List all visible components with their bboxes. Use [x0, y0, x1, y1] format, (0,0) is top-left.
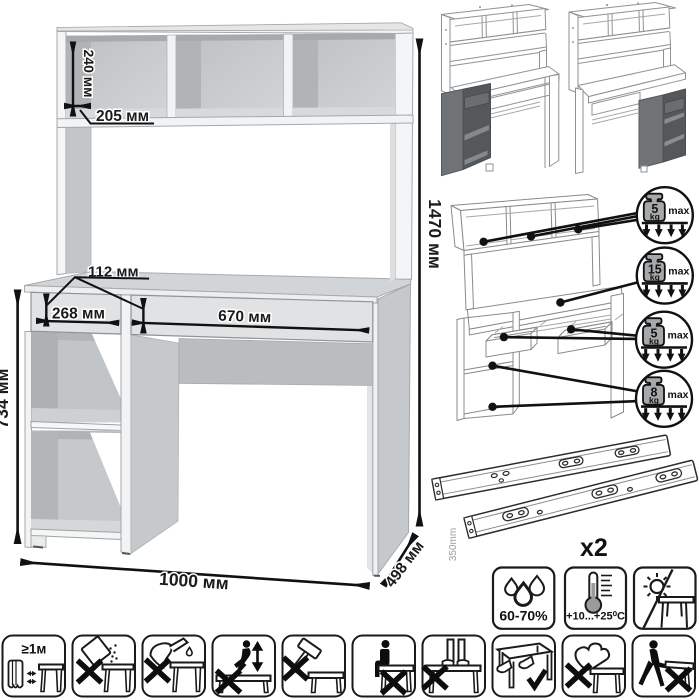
- svg-text:max: max: [668, 205, 689, 217]
- svg-text:205 мм: 205 мм: [96, 108, 149, 125]
- svg-text:1000 мм: 1000 мм: [158, 569, 229, 594]
- svg-text:240 мм: 240 мм: [81, 50, 97, 98]
- svg-text:kg: kg: [650, 272, 660, 282]
- svg-text:670 мм: 670 мм: [218, 308, 272, 327]
- svg-text:268 мм: 268 мм: [52, 306, 105, 323]
- svg-text:60-70%: 60-70%: [499, 608, 548, 624]
- svg-text:≥1м: ≥1м: [22, 642, 47, 657]
- svg-text:+10...+25⁰С: +10...+25⁰С: [566, 611, 625, 623]
- svg-text:1470 мм: 1470 мм: [425, 199, 445, 269]
- svg-text:max: max: [668, 266, 689, 278]
- svg-text:kg: kg: [650, 212, 660, 222]
- svg-text:734 мм: 734 мм: [0, 369, 12, 429]
- svg-text:350mm: 350mm: [448, 528, 459, 561]
- svg-text:x2: x2: [580, 534, 608, 562]
- svg-text:kg: kg: [649, 395, 659, 405]
- svg-text:max: max: [668, 389, 689, 401]
- svg-text:max: max: [668, 330, 689, 342]
- svg-text:kg: kg: [649, 336, 659, 346]
